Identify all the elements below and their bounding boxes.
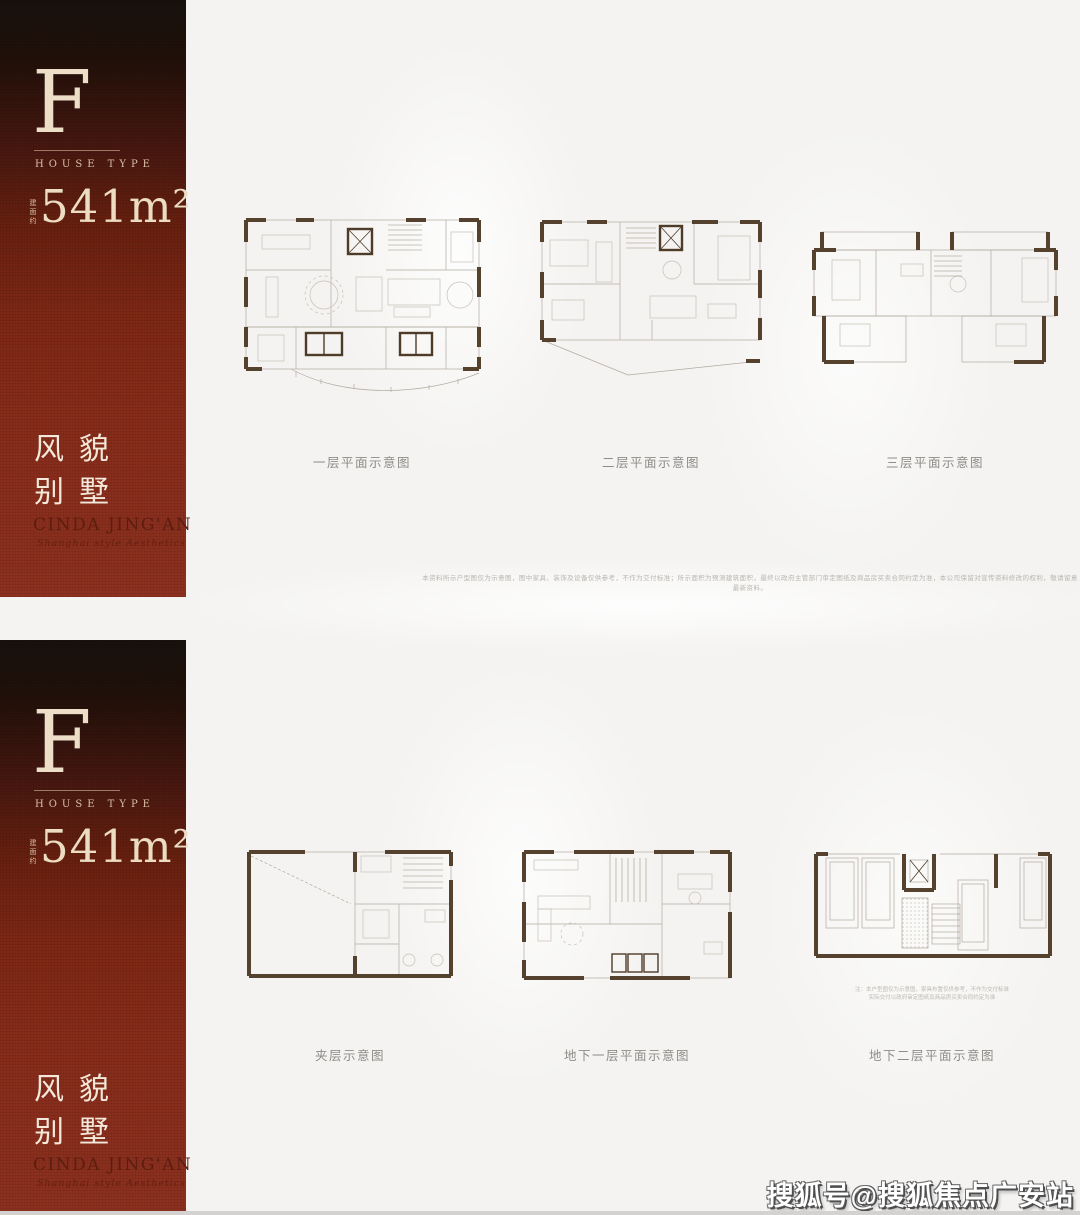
plan4-furniture [361, 856, 445, 966]
house-type-letter: F [32, 60, 92, 146]
project-name-line1: 风貌 [34, 1068, 124, 1111]
plan4-slope-line [251, 856, 351, 904]
project-name-line2: 别墅 [34, 1111, 124, 1154]
plan5-walls [524, 852, 730, 978]
plan6-elevator-core [904, 854, 934, 890]
sidebar-house-type-lower: F HOUSE TYPE 建面约 541m² 风貌 别墅 CINDA JING'… [0, 640, 186, 1215]
plan-caption-mezzanine: 夹层示意图 [237, 1045, 463, 1064]
house-type-caption: HOUSE TYPE [35, 799, 155, 810]
plan5-outline [524, 852, 730, 978]
area-block: 建面约 541m² [27, 824, 192, 869]
plan5-stairs [616, 858, 646, 902]
area-value: 541m² [40, 184, 192, 229]
project-name-line2: 别墅 [34, 471, 124, 514]
plan4-outline [249, 852, 451, 976]
project-name: 风貌 别墅 [34, 1068, 124, 1154]
basement2-note: 注：本户型图仅为示意图，家具布置仅供参考，不作为交付标准 实际交付以政府审定图纸… [806, 986, 1058, 1002]
plan4-stairs [403, 858, 443, 888]
plan4-walls [249, 852, 451, 976]
project-name-line1: 风貌 [34, 428, 124, 471]
plan6-stairs [932, 908, 960, 938]
brand-name: CINDA JING'AN [33, 515, 192, 535]
basement2-note-line1: 注：本户型图仅为示意图，家具布置仅供参考，不作为交付标准 [806, 986, 1058, 994]
plan5-cellar-modules [612, 954, 658, 972]
brand-tagline: Shanghai style Aesthetics [37, 538, 186, 549]
house-type-letter: F [32, 700, 92, 786]
divider-line [34, 790, 120, 791]
floor-plan-basement1-drawing [514, 842, 740, 988]
divider-line [34, 150, 120, 151]
area-note: 建面约 [27, 199, 37, 229]
brand-name: CINDA JING'AN [33, 1155, 192, 1175]
project-name: 风貌 别墅 [34, 428, 124, 514]
bottom-edge-strip [0, 1211, 1080, 1215]
floor-plan-basement2-drawing [806, 846, 1058, 968]
plan-caption-basement2: 地下二层平面示意图 [806, 1045, 1058, 1064]
area-note: 建面约 [27, 839, 37, 869]
brand-tagline: Shanghai style Aesthetics [37, 1178, 186, 1189]
basement2-note-line2: 实际交付以政府审定图纸及商品房买卖合同约定为准 [806, 994, 1058, 1002]
house-type-caption: HOUSE TYPE [35, 159, 155, 170]
floor-plan-mezzanine-drawing [237, 840, 463, 988]
area-value: 541m² [40, 824, 192, 869]
area-block: 建面约 541m² [27, 184, 192, 229]
sohu-watermark: 搜狐号@搜狐焦点广安站 [767, 1174, 1074, 1213]
plan-caption-basement1: 地下一层平面示意图 [514, 1045, 740, 1064]
